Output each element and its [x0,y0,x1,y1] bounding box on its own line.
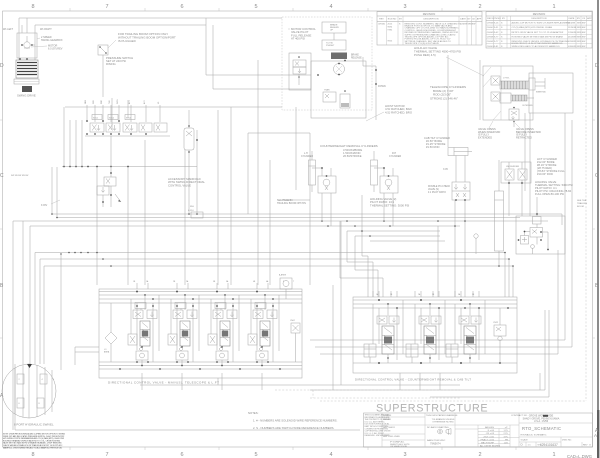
svg-text:2. S - NUMBERS ARE SWITCH WIRE: 2. S - NUMBERS ARE SWITCH WIRE REFERENCE… [253,426,334,430]
svg-text:INNER MID: INNER MID [536,92,547,94]
svg-text:DOUBLE PO-CHECK: DOUBLE PO-CHECK [428,186,451,188]
svg-text:SUPERSTRUCTURE: SUPERSTRUCTURE [376,403,488,415]
svg-text:IS PLUGGED: IS PLUGGED [118,39,136,43]
svg-text:U.S.A. 17256: U.S.A. 17256 [534,420,549,423]
svg-text:6: 6 [180,4,183,10]
svg-text:7: 7 [105,452,108,458]
svg-text:7: 7 [105,4,108,10]
svg-text:1: 1 [552,4,555,10]
svg-text:ALL DIM IN INCHES: ALL DIM IN INCHES [480,445,501,448]
svg-text:6.0 (97) REV: 6.0 (97) REV [48,48,63,51]
svg-text:RETRACTED: RETRACTED [516,135,532,139]
svg-text:CK: CK [472,19,476,21]
svg-text:26.50/STROKE: 26.50/STROKE [343,154,362,158]
svg-text:AC1: AC1 [128,100,131,104]
svg-text:4: 4 [329,4,332,10]
svg-text:RTO_SCHEMATIC: RTO_SCHEMATIC [522,426,561,431]
svg-text:5: 5 [254,452,257,458]
svg-text:PBR: PBR [101,99,103,104]
svg-text:11/4/98: 11/4/98 [568,23,576,25]
svg-text:PSI/SET: PSI/SET [326,45,335,47]
svg-text:NO BACK DRAFTING: NO BACK DRAFTING [427,426,449,429]
svg-text:C: C [595,173,599,179]
svg-text:SOL2: SOL2 [109,118,115,120]
svg-text:REV: REV [583,445,588,447]
svg-text:AT 400 PSI: AT 400 PSI [291,37,305,41]
svg-text:SWING GEARBOX: SWING GEARBOX [41,39,63,42]
svg-text:03/06/99: 03/06/99 [568,46,577,48]
svg-text:ANGLES: ANGLES [485,426,494,429]
svg-text:FR: FR [505,439,508,441]
svg-text:DIRECTIONAL CONTROL VALVE -: DIRECTIONAL CONTROL VALVE - MAIN(S), TEL… [108,381,219,385]
svg-text:125/: 125/ [504,443,509,445]
svg-text:A: A [594,433,597,438]
svg-text:DIRECTIONAL CONTROL VALVE -: DIRECTIONAL CONTROL VALVE - COUNTERWEIGH… [355,378,471,382]
svg-text:NEXT ASSY: NEXT ASSY [383,426,396,429]
svg-text:SW SW SW SW SW: SW SW SW SW SW [11,175,29,177]
svg-text:RISING: RISING [106,62,116,66]
svg-text:SMSER: SMSER [383,419,391,421]
svg-text:FULL OPEN 80-100 PSI: FULL OPEN 80-100 PSI [535,192,564,196]
svg-text:2: 2 [478,4,481,10]
svg-text:11/24/98: 11/24/98 [568,27,577,29]
svg-text:02/08/99: 02/08/99 [568,41,577,43]
svg-text:FRACT ±1/16: FRACT ±1/16 [481,438,495,441]
svg-text:AC2: AC2 [143,100,146,104]
svg-text:TELESCOPE CYL(S) & RLF VALVE: TELESCOPE CYL(S) & RLF VALVE [405,42,440,45]
svg-text:WH: WH [190,206,194,208]
svg-text:W1 LEFT: W1 LEFT [3,28,14,31]
svg-text:3 PL: 3 PL [504,436,509,438]
svg-text:OUTER MID: OUTER MID [522,105,533,107]
svg-text:TRAILING: TRAILING [577,202,587,205]
svg-text:TRAN: TRAN [324,89,330,92]
svg-text:0.124: 0.124 [188,210,194,212]
svg-text:REVISION: REVISION [423,12,436,16]
svg-text:6: 6 [180,452,183,458]
svg-text:APP: APP [477,18,482,21]
svg-text:12/04/98: 12/04/98 [568,32,577,34]
svg-text:CK: CK [582,18,586,20]
svg-text:CN22: CN22 [493,322,499,324]
svg-text:CYL(S) WAS (MTR) HYD SWIVEL CL: CYL(S) WAS (MTR) HYD SWIVEL CLEAN [512,26,553,29]
svg-text:CHG/A: CHG/A [378,22,385,25]
svg-text:D: D [595,63,599,69]
svg-text:LMI BUFFER: LMI BUFFER [506,166,519,168]
svg-text:.XX ±.03: .XX ±.03 [486,433,495,435]
svg-text:BRAKE: BRAKE [351,54,359,57]
svg-text:OF SAME ISSUE: OF SAME ISSUE [390,445,408,448]
svg-text:1 PL: 1 PL [504,430,509,432]
svg-text:DESCRIPTION: DESCRIPTION [424,19,439,21]
svg-text:MANIFOLD, CHG/G SWING RES ADD: MANIFOLD, CHG/G SWING RES ADD TO ACC MAN… [3,446,62,449]
svg-text:W1 RIGHT: W1 RIGHT [40,28,52,31]
svg-text:THERMAL SETTING: 3000 PSI: THERMAL SETTING: 3000 PSI [370,203,409,207]
svg-text:.X ±.06: .X ±.06 [487,430,495,432]
svg-text:EXTENDED: EXTENDED [478,135,492,139]
svg-text:8: 8 [31,452,34,458]
svg-text:1. # - NUMBERS ARE SOLENOID WI: 1. # - NUMBERS ARE SOLENOID WIRE REFEREN… [253,419,338,423]
svg-text:1 P.STL: 1 P.STL [503,78,510,80]
svg-text:AREA: AREA [104,351,110,354]
svg-text:01/18/99: 01/18/99 [568,36,577,38]
svg-text:2: 2 [478,452,481,458]
svg-text:G: G [589,445,591,447]
svg-text:SEE THE: SEE THE [577,200,587,202]
svg-text:CAD=L.DWG: CAD=L.DWG [567,454,592,458]
svg-text:SOL3: SOL3 [126,118,132,120]
svg-text:REV: REV [379,19,384,21]
svg-text:DATE: DATE [460,18,466,21]
svg-text:#1.50 ROD: #1.50 ROD [426,145,440,149]
svg-text:DWG NO.: DWG NO. [562,440,572,442]
svg-text:HYDRAULIC SCHEMATIC: HYDRAULIC SCHEMATIC [521,434,547,437]
svg-text:1: 1 [552,452,555,458]
svg-text:DATE: DATE [569,17,575,20]
svg-text:RETR'D ORCE VALVE NOT TO CYL P: RETR'D ORCE VALVE NOT TO CYL PLUS ADAPTE… [512,31,564,34]
svg-text:SCALE: SCALE [521,439,529,442]
svg-text:X.05: X.05 [443,169,448,171]
svg-text:8: 8 [31,4,34,10]
svg-text:6294101637: 6294101637 [540,443,558,447]
svg-text:4:1 PILOT RATIO: 4:1 PILOT RATIO [428,191,446,194]
svg-text:DOWN: DOWN [378,85,386,88]
svg-text:4.5J RATCHED, BRO: 4.5J RATCHED, BRO [385,110,413,114]
svg-text:ECN NO: ECN NO [492,18,501,20]
svg-text:CYLINDER: CYLINDER [389,155,401,158]
svg-text:STROKE (2) 346.46": STROKE (2) 346.46" [430,96,458,100]
svg-text:3: 3 [403,452,406,458]
svg-text:5: 5 [254,4,257,10]
svg-text:2 PL: 2 PL [504,433,509,435]
svg-text:BOOM CIRCUIT, LS IN OPT ACCESS: BOOM CIRCUIT, LS IN OPT ACCESSORY MANIFO… [512,42,564,45]
svg-text:REF DWG USED: REF DWG USED [383,436,400,438]
svg-text:CONTROL VALVE: CONTROL VALVE [168,183,191,187]
svg-text:#10.00" ROD: #10.00" ROD [537,172,553,176]
svg-text:D: D [0,63,4,69]
svg-text:SWG: SWG [117,99,119,104]
svg-text:K RIV: K RIV [41,204,48,207]
svg-text:ADDED 2-SP MOTOR TO SWG CYLIND: ADDED 2-SP MOTOR TO SWG CYLINDER REPLACE… [512,22,571,25]
svg-text:SWING RES & ADD TO ACCESSORY M: SWING RES & ADD TO ACCESSORY MANIFOLD [512,45,561,48]
svg-text:4: 4 [329,452,332,458]
svg-text:RELEASE: RELEASE [351,57,362,60]
svg-text:CN02: CN02 [290,320,295,322]
svg-text:TRAILING BOOM OPT/ON: TRAILING BOOM OPT/ON [277,202,306,205]
svg-text:EW: EW [472,23,475,25]
svg-text:OTHERWISE NOTED: OTHERWISE NOTED [432,421,454,423]
svg-text:MACH SURF: MACH SURF [481,442,495,445]
svg-text:REVISION: REVISION [533,12,546,16]
svg-text:BOOM: BOOM [577,206,584,208]
svg-text:NOTES:: NOTES: [248,411,259,415]
svg-text:C: C [0,173,4,179]
svg-text:VALVE (S): VALVE (S) [428,188,439,191]
svg-text:.XXX ±.010: .XXX ±.010 [483,436,495,438]
svg-text:SWING DRIVE: SWING DRIVE [17,94,36,98]
svg-text:COUNTERWEIGHT REMOVAL CYLINDER: COUNTERWEIGHT REMOVAL CYLINDERS [320,144,378,148]
svg-text:±1°: ±1° [505,427,508,429]
svg-text:APP: APP [587,17,592,20]
svg-text:8 PORT HYDRAULIC SWIVEL: 8 PORT HYDRAULIC SWIVEL [14,423,54,427]
svg-text:79N5674: 79N5674 [430,442,441,446]
svg-text:HOISTING VALVE SETTING WAS 3M: HOISTING VALVE SETTING WAS 3M PSI W/ BRA… [512,35,564,38]
svg-text:UP: UP [330,30,334,32]
svg-text:A-BRKE: A-BRKE [279,274,287,277]
svg-text:3: 3 [403,4,406,10]
svg-text:ECN NO: ECN NO [388,19,397,21]
svg-text:PUSH RED) 4.5): PUSH RED) 4.5) [414,53,436,57]
svg-text:SOL1: SOL1 [93,118,99,120]
svg-text:DESCRIPTION: DESCRIPTION [532,18,547,20]
svg-text:CYLINDER: CYLINDER [301,155,313,158]
